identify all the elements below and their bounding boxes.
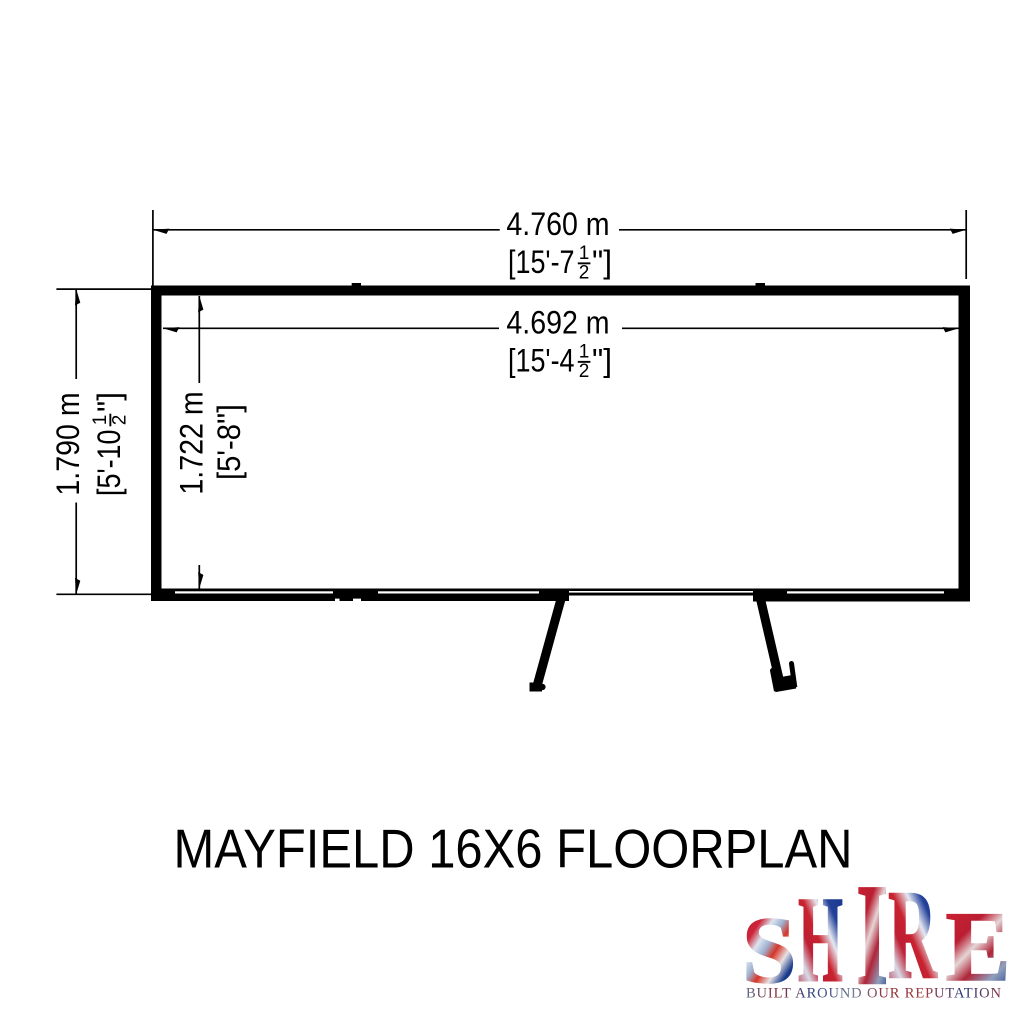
svg-text:[5'-8: [5'-8 (211, 424, 247, 480)
svg-text:4.692 m: 4.692 m (506, 305, 609, 341)
svg-text:2: 2 (579, 361, 590, 382)
svg-text:1.722 m: 1.722 m (174, 391, 210, 494)
svg-text:"]: "] (91, 392, 127, 412)
svg-text:2: 2 (579, 262, 590, 283)
svg-text:1: 1 (90, 415, 111, 426)
svg-text:"]: "] (592, 343, 612, 379)
svg-text:[5'-10: [5'-10 (91, 430, 127, 497)
svg-text:[15'-7: [15'-7 (508, 244, 575, 280)
svg-text:"]: "] (592, 244, 612, 280)
svg-text:[15'-4: [15'-4 (508, 343, 575, 379)
svg-text:1: 1 (579, 341, 590, 362)
svg-text:1.790 m: 1.790 m (50, 392, 86, 495)
svg-text:"]: "] (211, 404, 247, 424)
svg-text:4.760 m: 4.760 m (506, 206, 609, 242)
svg-text:1: 1 (579, 243, 590, 264)
svg-text:2: 2 (109, 415, 130, 426)
svg-text:MAYFIELD 16X6 FLOORPLAN: MAYFIELD 16X6 FLOORPLAN (174, 818, 853, 880)
svg-text:BUILT AROUND OUR REPUTATION: BUILT AROUND OUR REPUTATION (746, 986, 1002, 1002)
